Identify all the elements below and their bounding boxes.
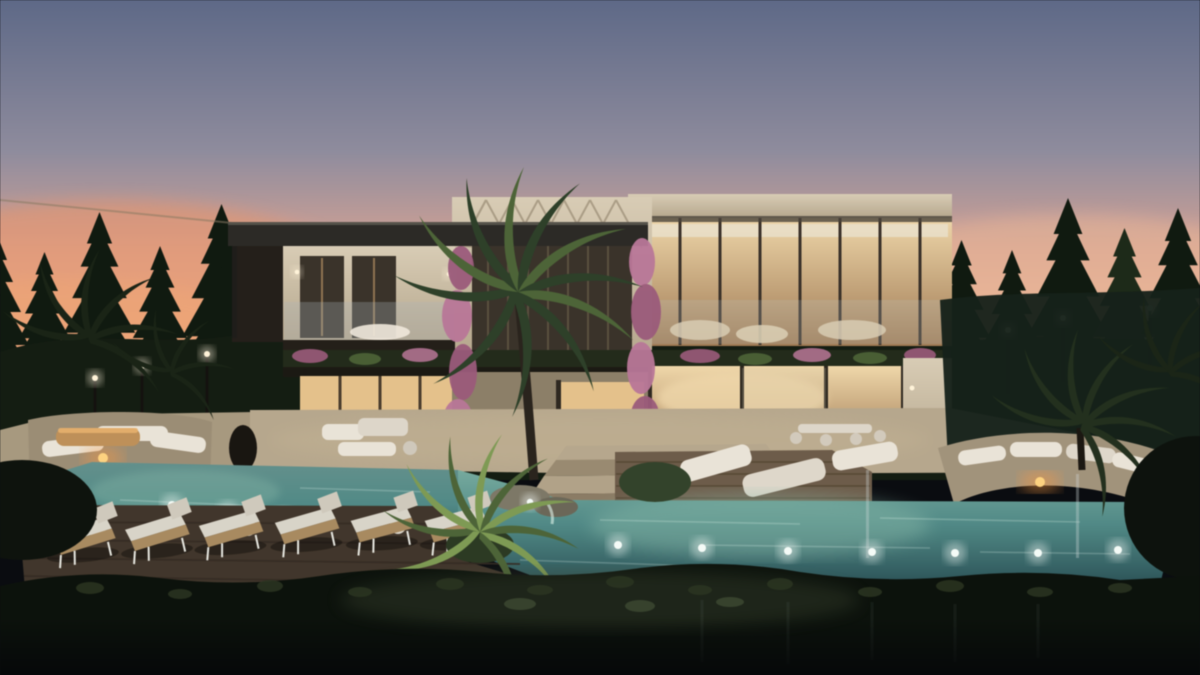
villa-scene-svg (0, 0, 1200, 675)
glass-railing (644, 300, 944, 344)
right-parapet (628, 194, 952, 218)
lit-ceiling (644, 224, 948, 237)
villa-right-wing-upper (628, 194, 952, 346)
roof-post (232, 246, 237, 338)
bottom-darkness (0, 618, 1200, 675)
shaded-balcony (232, 246, 283, 342)
dark-planter (229, 425, 257, 471)
wall-sconce (910, 386, 915, 391)
agave-plant (619, 462, 691, 502)
villa-rendering-photo (0, 0, 1200, 675)
lounge-cushion (1010, 442, 1062, 457)
fire-pit (1020, 472, 1060, 492)
foreground-hedge (0, 564, 1200, 675)
balcony-daybed (350, 324, 410, 340)
